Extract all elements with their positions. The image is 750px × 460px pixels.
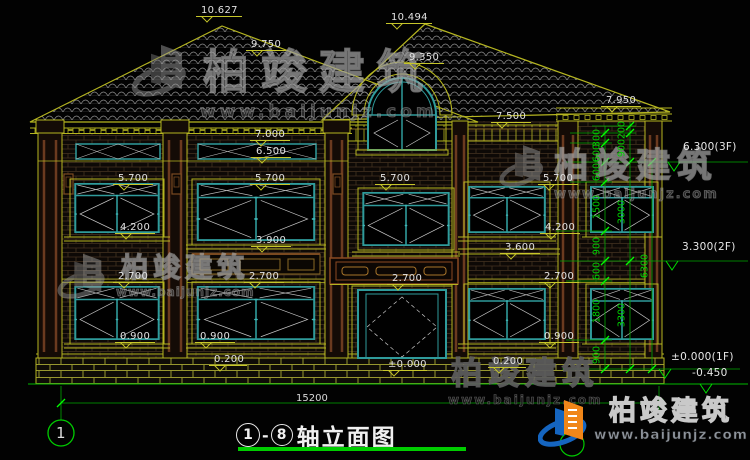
dimension-value: 600 xyxy=(592,163,603,181)
elevation-label: 3.900 xyxy=(251,236,291,255)
elevation-label: 2.700 xyxy=(113,272,153,291)
elevation-label: 4.200 xyxy=(115,223,155,242)
elevation-label: 10.627 xyxy=(196,6,242,25)
elevation-label: 5.700 xyxy=(538,174,578,193)
elevation-label: 0.900 xyxy=(115,332,155,351)
elevation-label: 5.700 xyxy=(250,174,290,193)
dimension-value: 900 xyxy=(592,346,603,364)
elevation-label: ±0.000 xyxy=(383,360,427,379)
dimension-value: 200 xyxy=(617,121,628,139)
elevation-label: 2.700 xyxy=(387,274,427,293)
cad-elevation-screenshot: 1 柏竣建筑 www.baijunjz.com 柏竣建筑 www.baijunj… xyxy=(0,0,750,460)
elevation-label: 9.750 xyxy=(246,40,286,59)
elevation-label: 4.200 xyxy=(540,223,580,242)
dimension-value: 1800 xyxy=(592,299,603,323)
dimension-value: 3300 xyxy=(617,303,628,327)
dimension-value: 3000 xyxy=(617,200,628,224)
elevation-label: 2.700 xyxy=(539,272,579,291)
dimension-value: 1500 xyxy=(592,195,603,219)
level-mark-label: ±0.000(1F) xyxy=(671,352,734,363)
level-mark-label: 3.300(2F) xyxy=(682,242,736,253)
level-mark-label: -0.450 xyxy=(692,368,728,379)
elevation-label: 0.200 xyxy=(488,357,526,376)
dimension-value: 6300 xyxy=(640,254,651,278)
elevation-label: 0.900 xyxy=(195,332,235,351)
dimension-value: 600 xyxy=(592,262,603,280)
elevation-label: 7.500 xyxy=(491,112,531,131)
dimension-value: 900 xyxy=(617,139,628,157)
annotation-layer: 10.6279.75010.4949.3507.9507.5007.0006.5… xyxy=(0,0,750,460)
dimension-value: 900 xyxy=(592,237,603,255)
elevation-label: 9.350 xyxy=(404,53,444,72)
elevation-label: 7.950 xyxy=(601,96,641,115)
elevation-label: 2.700 xyxy=(244,272,284,291)
elevation-label: 6.500 xyxy=(251,147,291,166)
elevation-label: 0.900 xyxy=(539,332,579,351)
elevation-label: 0.200 xyxy=(209,355,247,374)
elevation-label: 10.494 xyxy=(386,13,432,32)
elevation-label: 3.600 xyxy=(500,243,540,262)
level-mark-label: 6.300(3F) xyxy=(683,142,737,153)
elevation-label: 5.700 xyxy=(375,174,415,193)
dimension-value: 600 xyxy=(592,144,603,162)
elevation-label: 5.700 xyxy=(113,174,153,193)
